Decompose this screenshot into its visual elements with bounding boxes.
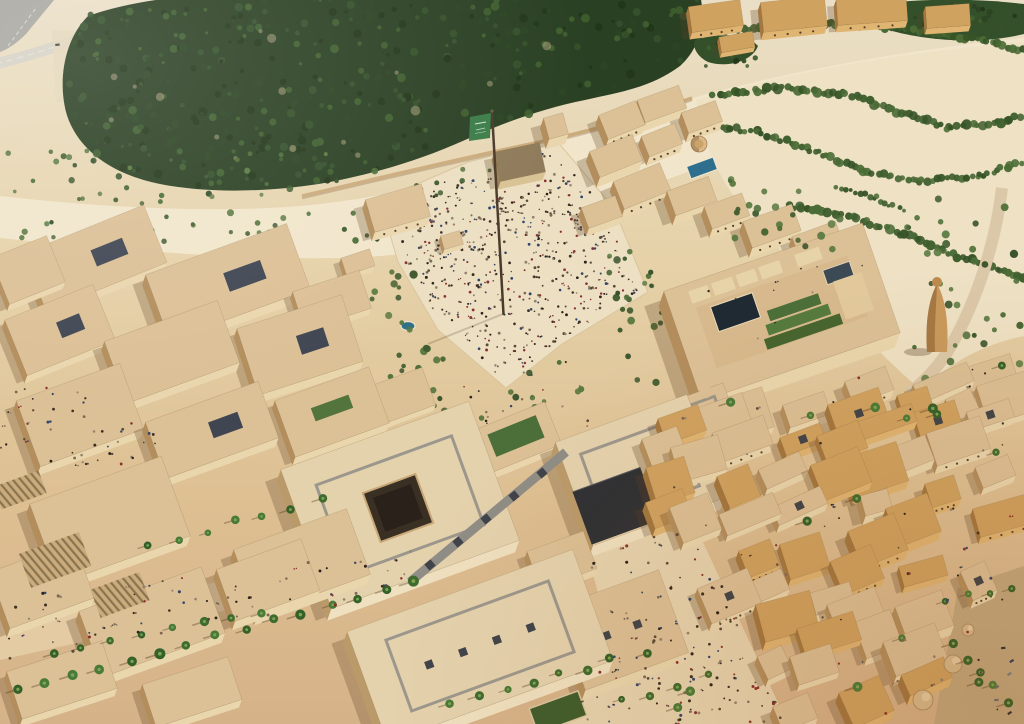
aerial-city-render xyxy=(0,0,1024,724)
scene-canvas xyxy=(0,0,1024,724)
haze-overlay xyxy=(0,0,1024,724)
